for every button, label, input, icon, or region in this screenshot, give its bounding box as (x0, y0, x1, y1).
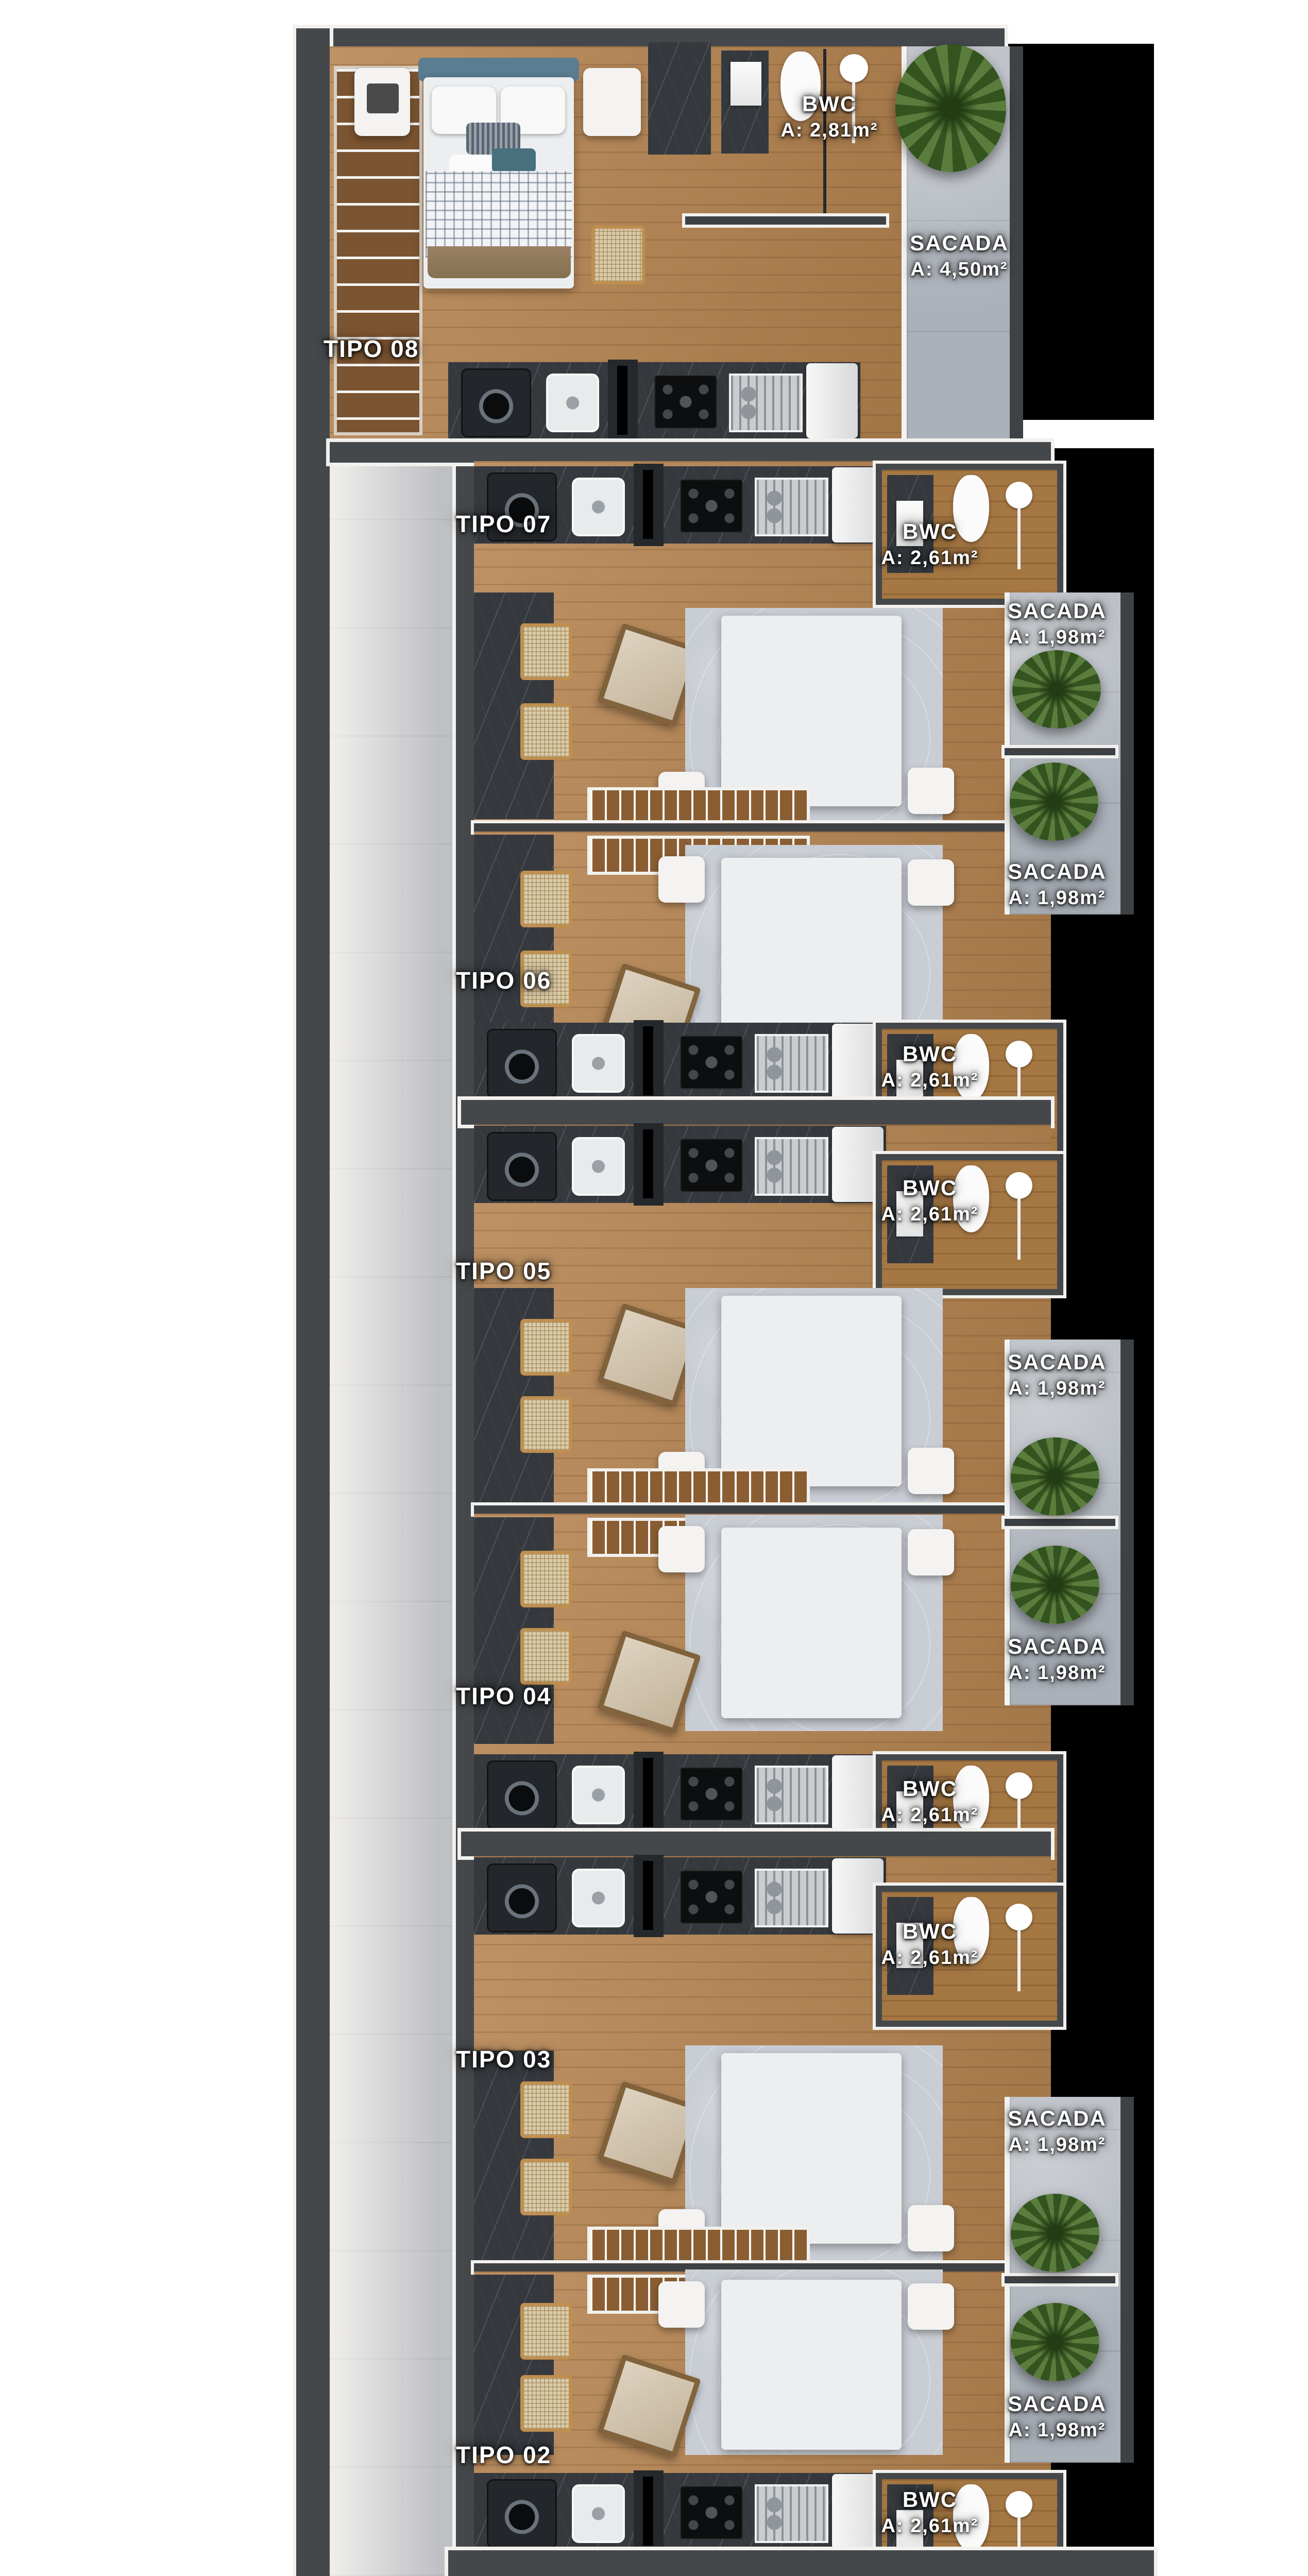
t08-blanket-fold (428, 246, 571, 278)
t08-bwc-wall (685, 216, 886, 225)
t06-stove (680, 1036, 743, 1089)
t07-shower-head (1006, 482, 1032, 509)
t03-stove (680, 1870, 743, 1924)
t03-bed (721, 2053, 902, 2244)
unit-label-tipo-03: TIPO 03 (456, 2045, 551, 2073)
room-label-bwc-t08: BWC A: 2,81m² (780, 92, 878, 142)
t04-washing-machine (487, 1760, 557, 1829)
t04-shower-head (1006, 1772, 1032, 1799)
wall-t04-t03 (461, 1832, 1051, 1856)
t05-kitchen-slot (643, 1129, 653, 1198)
palm-t08-balcony (895, 44, 1006, 172)
t02-kitchen-sink (755, 2484, 828, 2543)
t08-cushion-teal (492, 148, 536, 173)
t05-side-table-right (908, 1448, 954, 1494)
room-label-bwc-t02: BWC A: 2,61m² (881, 2487, 978, 2537)
t03-shower-pole (1017, 1929, 1021, 1991)
t02-bar-stool-2 (520, 2375, 572, 2432)
t08-stove (654, 375, 717, 429)
wall-left (296, 28, 330, 2576)
t06-washing-machine (487, 1029, 557, 1098)
t07-bar-stool-1 (520, 623, 572, 680)
palm-balcony-t05 (1011, 1437, 1099, 1516)
t05-shower-pole (1017, 1198, 1021, 1260)
t04-kitchen-slot (643, 1758, 653, 1827)
t04-bar-stool-2 (520, 1628, 572, 1685)
room-label-sacada-t02: SACADA A: 1,98m² (1008, 2392, 1107, 2442)
t02-side-table-left (658, 2281, 705, 2328)
t03-bar-stool-2 (520, 2159, 572, 2215)
t06-shower-head (1006, 1041, 1032, 1067)
t02-laundry-sink (572, 2484, 625, 2543)
t03-kitchen-sink (755, 1869, 828, 1927)
wall-t06-t05 (461, 1100, 1051, 1125)
t07-stove (680, 479, 743, 533)
t05-slat-bench (587, 1468, 810, 1507)
t03-side-table-right (908, 2205, 954, 2251)
t02-shower-head (1006, 2491, 1032, 2518)
void-top-right (1005, 44, 1154, 420)
t07-shower-pole (1017, 507, 1021, 569)
t03-shower-head (1006, 1904, 1032, 1930)
room-label-bwc-t07: BWC A: 2,61m² (881, 519, 978, 569)
room-label-bwc-t04: BWC A: 2,61m² (881, 1776, 978, 1826)
wall-t08-t07 (330, 442, 1051, 463)
t05-bed (721, 1296, 902, 1486)
room-label-bwc-t05: BWC A: 2,61m² (881, 1176, 978, 1226)
t06-bar-stool-1 (520, 871, 572, 927)
t06-kitchen-sink (755, 1034, 828, 1093)
t08-washing-machine (461, 368, 531, 437)
wall-t07-t06 (474, 823, 1051, 832)
wall-t05-t04 (474, 1505, 1051, 1514)
t07-bed (721, 616, 902, 806)
t03-slat-bench (587, 2227, 810, 2266)
room-label-bwc-t06: BWC A: 2,61m² (881, 1042, 978, 1092)
palm-balcony-t03 (1011, 2194, 1099, 2272)
t06-kitchen-slot (643, 1026, 653, 1095)
t03-laundry-sink (572, 1869, 625, 1927)
unit-label-tipo-04: TIPO 04 (456, 1682, 551, 1710)
room-label-sacada-t07: SACADA A: 1,98m² (1008, 599, 1107, 649)
t08-blanket-plaid (426, 171, 572, 258)
t07-slat-bench (587, 787, 810, 826)
t04-bed (721, 1528, 902, 1718)
t05-kitchen-sink (755, 1137, 828, 1196)
t04-stove (680, 1767, 743, 1821)
t03-washing-machine (487, 1863, 557, 1933)
t06-side-table-left (658, 856, 705, 903)
wall-t02-stairs (448, 2550, 1154, 2576)
t03-bar-stool-1 (520, 2081, 572, 2138)
t08-bwc-sink (731, 62, 761, 106)
t04-bar-stool-1 (520, 1551, 572, 1607)
t05-shower-head (1006, 1172, 1032, 1199)
unit-label-tipo-08: TIPO 08 (324, 335, 419, 363)
t08-laundry-sink (546, 374, 599, 432)
balcony-divider-c (1005, 2276, 1115, 2283)
t07-bar-stool-2 (520, 703, 572, 760)
balcony-divider-b (1005, 1519, 1115, 1526)
t08-kitchen-sink (729, 374, 803, 432)
t04-side-table-right (908, 1529, 954, 1575)
balcony-divider-a (1005, 748, 1115, 755)
t04-laundry-sink (572, 1766, 625, 1824)
t08-tray (367, 83, 399, 113)
t02-stove (680, 2486, 743, 2539)
room-label-sacada-t04: SACADA A: 1,98m² (1008, 1634, 1107, 1684)
t02-side-table-right (908, 2283, 954, 2330)
t06-bed (721, 858, 902, 1048)
room-label-bwc-t03: BWC A: 2,61m² (881, 1919, 978, 1969)
t02-bar-stool-1 (520, 2303, 572, 2360)
palm-balcony-t02 (1011, 2303, 1099, 2381)
unit-label-tipo-06: TIPO 06 (456, 967, 551, 994)
t08-kitchen-slot (617, 366, 627, 435)
t02-bed (721, 2280, 902, 2450)
t02-kitchen-slot (643, 2477, 653, 2546)
t07-side-table-right (908, 768, 954, 814)
t02-washing-machine (487, 2479, 557, 2548)
t06-laundry-sink (572, 1034, 625, 1093)
room-label-sacada-t08: SACADA A: 4,50m² (910, 231, 1009, 281)
t05-stove (680, 1139, 743, 1192)
room-label-sacada-t05: SACADA A: 1,98m² (1008, 1350, 1107, 1400)
palm-balcony-t04 (1011, 1546, 1099, 1624)
t06-side-table-right (908, 859, 954, 906)
t04-side-table-left (658, 1526, 705, 1572)
floor-plan-image: TIPO 08 TIPO 07 TIPO 06 TIPO 05 TIPO 04 … (0, 0, 1308, 2576)
t07-laundry-sink (572, 478, 625, 536)
t08-shower-head (840, 54, 868, 82)
wall-corridor-units (456, 442, 474, 2550)
t03-kitchen-slot (643, 1861, 653, 1930)
t05-bar-stool-1 (520, 1319, 572, 1376)
room-label-sacada-t03: SACADA A: 1,98m² (1008, 2106, 1107, 2156)
t08-cabinet (648, 42, 711, 155)
palm-balcony-t06 (1010, 762, 1098, 841)
t07-kitchen-sink (755, 478, 828, 536)
room-label-sacada-t06: SACADA A: 1,98m² (1008, 859, 1107, 909)
unit-label-tipo-05: TIPO 05 (456, 1257, 551, 1285)
t08-stool (591, 226, 645, 284)
t05-laundry-sink (572, 1137, 625, 1196)
t05-washing-machine (487, 1132, 557, 1201)
t04-kitchen-sink (755, 1766, 828, 1824)
t08-fridge (806, 363, 858, 438)
t05-bar-stool-2 (520, 1396, 572, 1453)
corridor (330, 442, 456, 2576)
palm-balcony-t07 (1012, 650, 1101, 728)
unit-label-tipo-07: TIPO 07 (456, 510, 551, 538)
unit-label-tipo-02: TIPO 02 (456, 2441, 551, 2469)
t08-nightstand-right (583, 68, 641, 136)
t07-kitchen-slot (643, 470, 653, 539)
